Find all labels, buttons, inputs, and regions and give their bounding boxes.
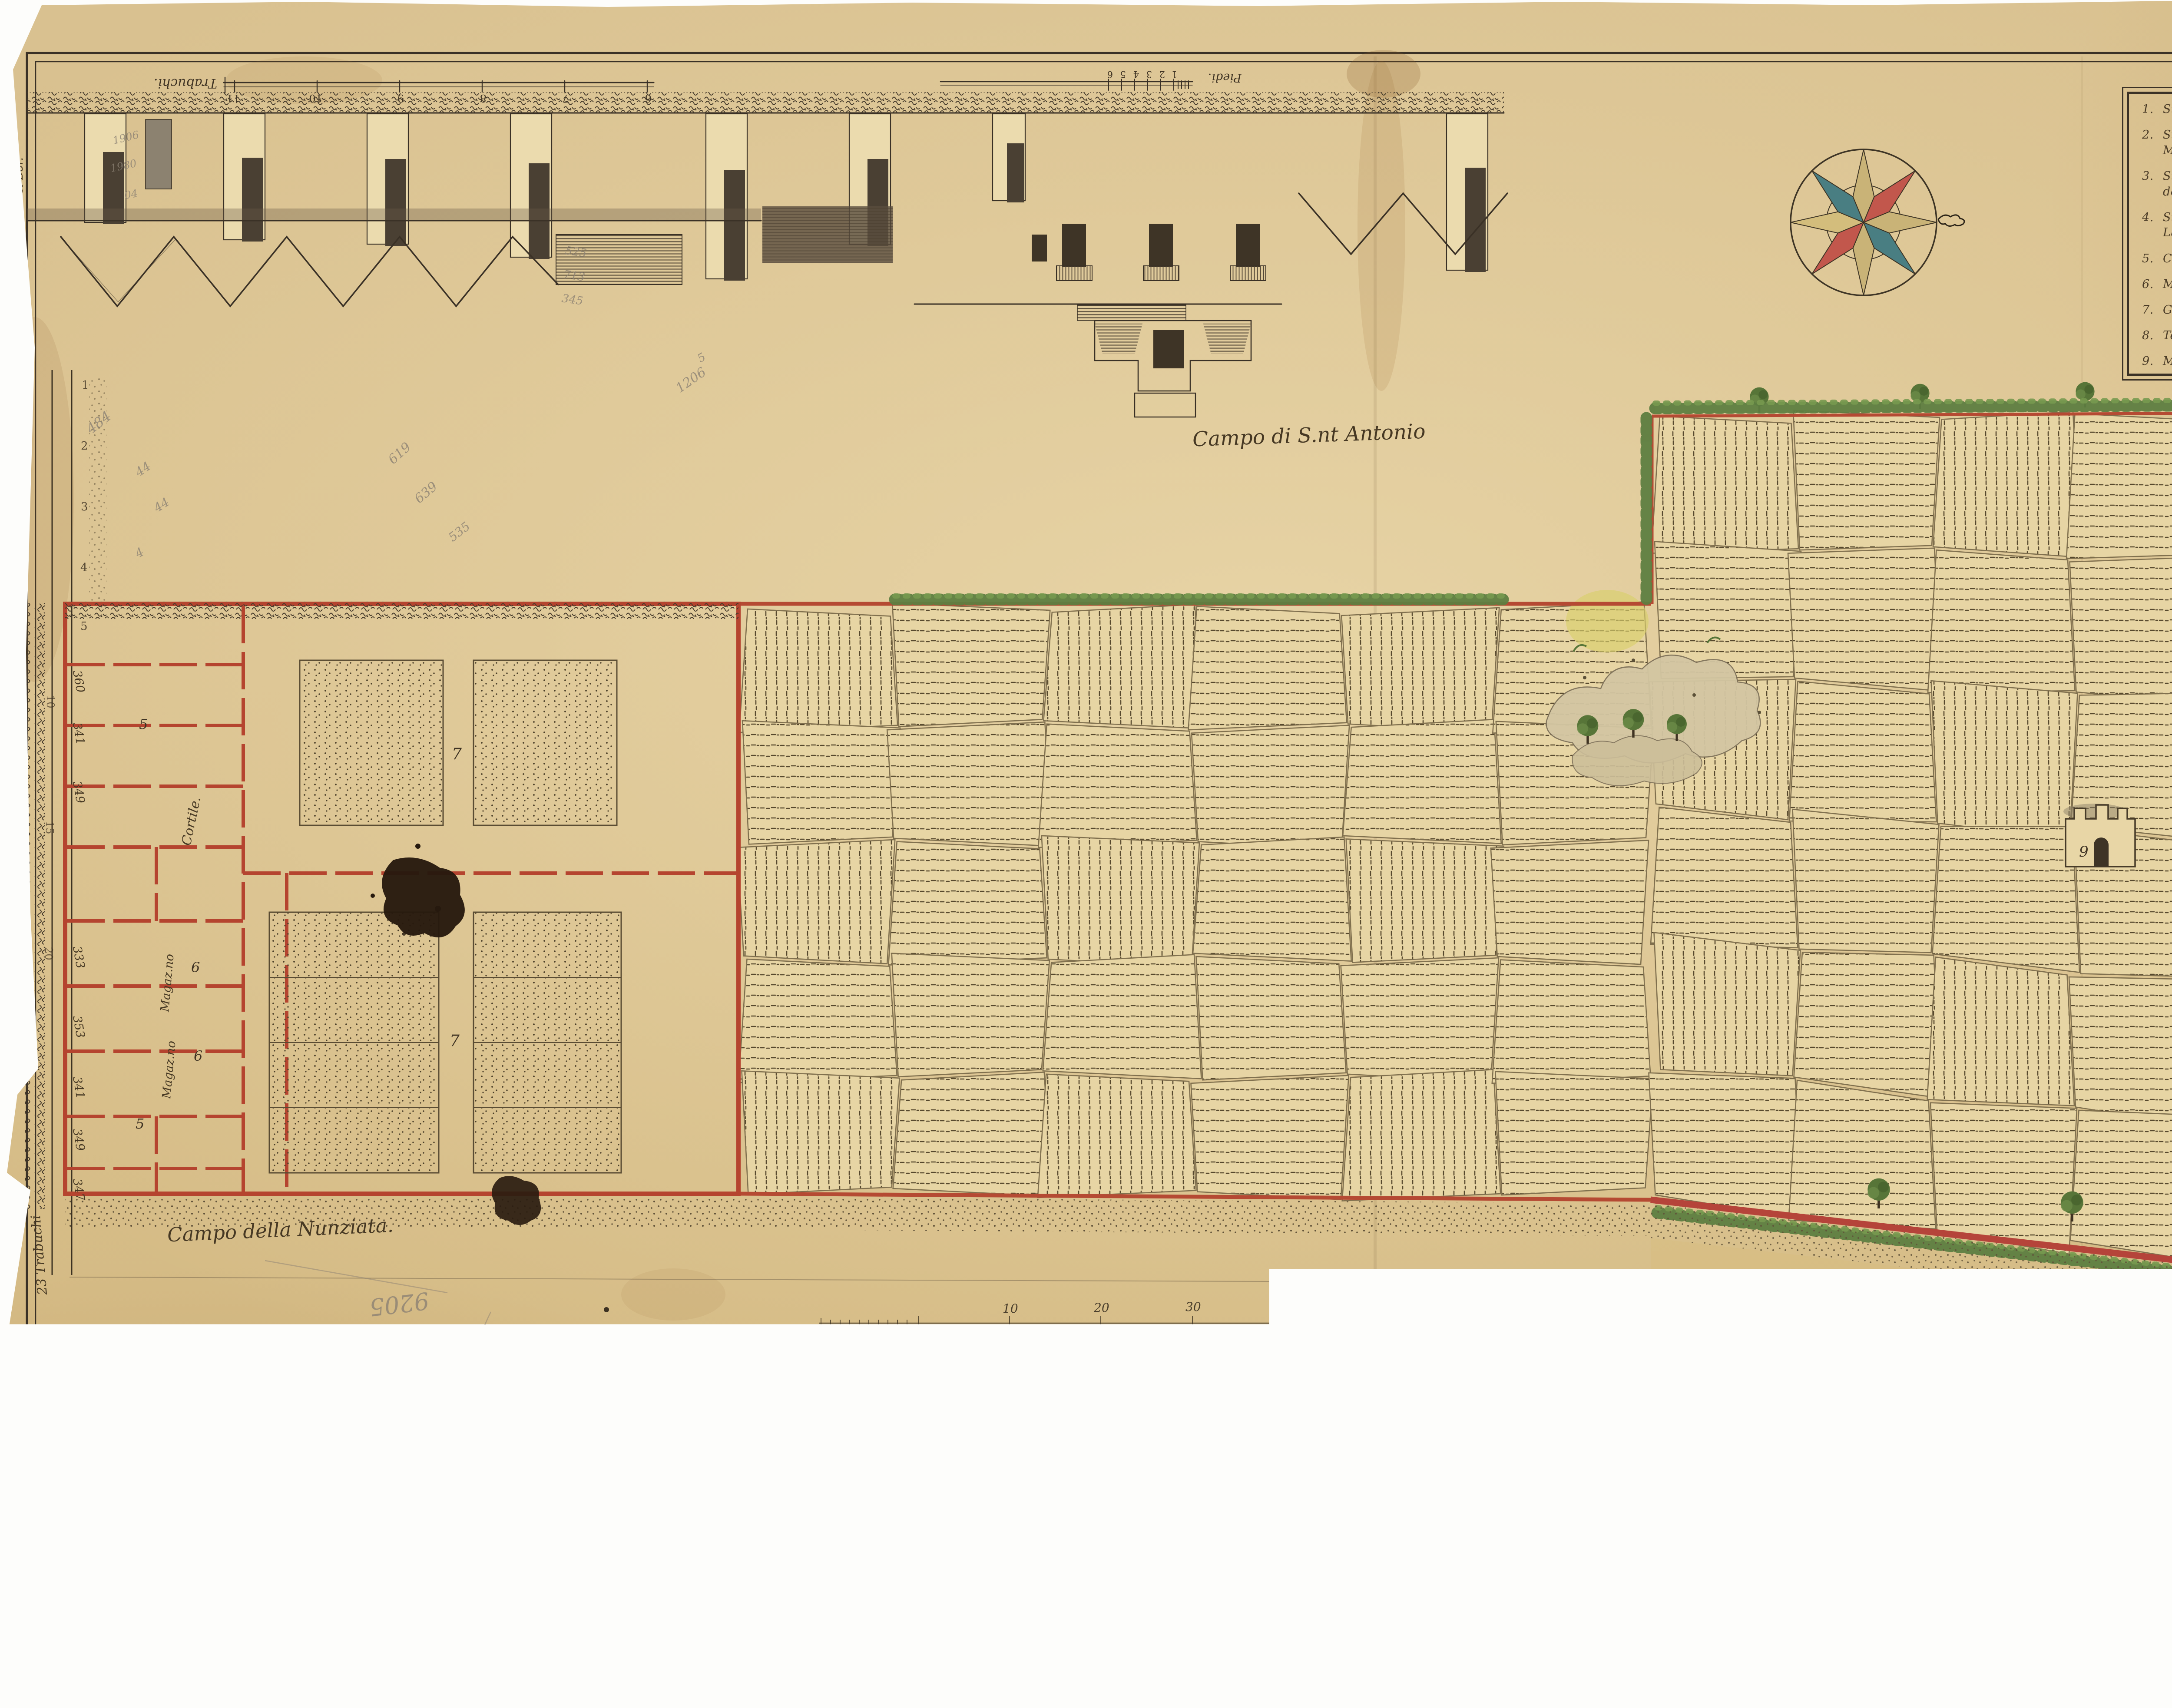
field-parcel <box>1346 839 1504 962</box>
svg-text:10: 10 <box>1003 1301 1018 1316</box>
svg-text:353: 353 <box>70 1015 87 1039</box>
field-parcel <box>1652 416 1799 553</box>
field-parcel <box>892 953 1050 1077</box>
field-parcel <box>1495 1072 1653 1195</box>
field-parcel <box>742 721 900 844</box>
cortile-label: Cortile. <box>179 795 204 847</box>
field-parcel <box>1794 952 1941 1098</box>
field-parcel <box>1789 681 1937 822</box>
field-parcel <box>1789 1080 1936 1229</box>
field-parcel <box>1793 410 1940 550</box>
field-parcel <box>2069 977 2172 1128</box>
field-parcel <box>1192 725 1349 850</box>
field-parcel <box>1341 608 1499 732</box>
svg-text:50: 50 <box>1368 1298 1384 1312</box>
field-parcel <box>738 959 897 1082</box>
svg-text:37: 37 <box>113 1455 133 1474</box>
svg-text:341: 341 <box>70 1076 87 1100</box>
legend-item: 3.Strada che conduce alle fornace ed al … <box>2142 169 2172 199</box>
svg-text:4: 4 <box>132 545 146 561</box>
svg-text:5: 5 <box>695 351 708 365</box>
legend-item: 2.Strada che divide fra il posesso dell'… <box>2142 127 2172 158</box>
magazzino-b-label: Magaz.no <box>160 1040 179 1100</box>
field-parcel <box>1927 957 2075 1106</box>
field-parcel <box>1651 807 1798 948</box>
magazzino-a-label: Magaz.no <box>158 953 177 1013</box>
field-parcel <box>1649 1073 1803 1219</box>
elevation-drawing: Trabuchi. 11 10 9 8 7 6 6 5 4 3 2 1 Pied… <box>27 69 1507 417</box>
svg-text:9205: 9205 <box>368 1287 430 1321</box>
svg-text:44: 44 <box>151 495 172 516</box>
field-parcel <box>1492 960 1651 1083</box>
field-parcel <box>1788 548 1942 691</box>
svg-text:349: 349 <box>70 1128 87 1152</box>
field-parcel <box>1341 958 1499 1082</box>
svg-text:1295: 1295 <box>106 1427 146 1453</box>
svg-text:349: 349 <box>70 780 87 804</box>
legend-box: 1.Strada del Bor. 2.Strada che divide fr… <box>2122 87 2172 381</box>
field-parcel <box>2070 557 2172 705</box>
legend-item: 7.Giardini <box>2142 302 2172 318</box>
svg-text:5: 5 <box>136 1115 144 1132</box>
field-parcel <box>1042 836 1199 967</box>
svg-text:1206: 1206 <box>673 364 709 396</box>
svg-text:639: 639 <box>412 479 440 507</box>
svg-text:1: 1 <box>1172 69 1177 79</box>
svg-text:5: 5 <box>80 620 88 633</box>
svg-text:44: 44 <box>132 459 153 480</box>
svg-text:40: 40 <box>1276 1299 1292 1313</box>
svg-text:6: 6 <box>1107 69 1113 79</box>
field-parcel <box>1491 840 1649 964</box>
svg-text:20: 20 <box>1093 1301 1109 1315</box>
field-parcel <box>1931 681 2078 839</box>
trabuchi-23-label: 23 Trabuchi <box>28 1215 50 1296</box>
svg-text:4: 4 <box>80 561 88 574</box>
legend-item: 4.Strada del Giardino dell'Ill.mo Sig.r … <box>2142 210 2172 241</box>
field-parcel <box>893 1072 1052 1196</box>
svg-text:333: 333 <box>70 945 87 970</box>
svg-text:7: 7 <box>450 1032 460 1050</box>
strada-bor-side-label: Strada del Bor. <box>13 157 26 243</box>
field-parcel <box>737 840 895 964</box>
field-parcel <box>1196 957 1346 1080</box>
trabuchi-scale-label: Trabuchi. <box>154 76 217 91</box>
svg-text:3: 3 <box>81 500 88 513</box>
field-parcel <box>1189 606 1347 730</box>
field-parcel <box>1193 837 1351 961</box>
scale-bar: 10 20 30 40 50 metr. <box>819 1298 1444 1330</box>
scale-unit: metr. <box>1412 1299 1444 1313</box>
svg-text:04: 04 <box>123 187 139 202</box>
svg-text:5: 5 <box>139 716 148 732</box>
legend-item: 9.Molino d'aqua <box>2142 354 2172 369</box>
legend-item: 8.Terreno coltivato <box>2142 328 2172 344</box>
field-parcel <box>1933 412 2080 558</box>
compass-rose <box>1791 149 1964 295</box>
building-block: 7 7 5 5 6 6 Cortile. Magaz.no Magaz.no 3… <box>25 602 738 1209</box>
field-parcel <box>1038 1074 1196 1198</box>
field-parcel <box>742 1071 900 1194</box>
svg-text:535: 535 <box>446 519 473 545</box>
field-parcel <box>1038 724 1197 847</box>
legend-item: 6.Magazzeni per grani. <box>2142 277 2172 292</box>
field-parcel <box>1043 605 1202 729</box>
svg-text:4: 4 <box>1133 69 1139 79</box>
svg-text:1: 1 <box>82 379 89 392</box>
svg-text:2: 2 <box>81 440 88 453</box>
field-parcel <box>1343 719 1501 844</box>
field-parcel <box>1191 1076 1349 1200</box>
compass-east-flourish <box>1938 215 1964 226</box>
svg-text:15: 15 <box>43 821 56 834</box>
field-parcel <box>739 609 898 732</box>
svg-text:36,4: 36,4 <box>97 1484 133 1509</box>
svg-text:360: 360 <box>70 669 87 694</box>
svg-text:7: 7 <box>452 745 462 763</box>
water-mill: 9 <box>2063 804 2135 867</box>
svg-text:2: 2 <box>1159 69 1165 79</box>
field-parcel <box>1933 827 2080 973</box>
svg-text:30: 30 <box>1185 1300 1201 1314</box>
scanned-map-page: Trabuchi. 11 10 9 8 7 6 6 5 4 3 2 1 Pied… <box>0 0 2172 1708</box>
field-parcels <box>737 409 2172 1300</box>
legend-item: 1.Strada del Bor. <box>2142 102 2172 117</box>
field-parcel <box>1654 933 1801 1076</box>
field-parcel <box>2070 1110 2172 1264</box>
map-sheet: Trabuchi. 11 10 9 8 7 6 6 5 4 3 2 1 Pied… <box>0 0 2172 1708</box>
svg-text:3: 3 <box>1146 69 1152 79</box>
field-parcel <box>892 603 1050 727</box>
field-parcel <box>1342 1069 1501 1201</box>
field-parcel <box>1043 955 1202 1079</box>
legend-item: 5.Case di affitare. <box>2142 251 2172 267</box>
piedi-scale-label: Piedi. <box>1208 71 1242 84</box>
svg-text:5: 5 <box>1120 69 1126 79</box>
field-parcel <box>887 722 1052 846</box>
mill-number: 9 <box>2079 843 2089 861</box>
field-parcel <box>1928 550 2075 692</box>
field-parcel <box>888 841 1047 965</box>
svg-text:6: 6 <box>191 959 200 976</box>
svg-text:6: 6 <box>194 1048 202 1064</box>
svg-text:619: 619 <box>385 440 414 467</box>
svg-text:345: 345 <box>561 292 584 308</box>
svg-text:484: 484 <box>83 408 114 437</box>
field-parcel <box>1793 809 1939 953</box>
svg-text:10: 10 <box>44 695 56 708</box>
field-parcel <box>2066 414 2172 559</box>
